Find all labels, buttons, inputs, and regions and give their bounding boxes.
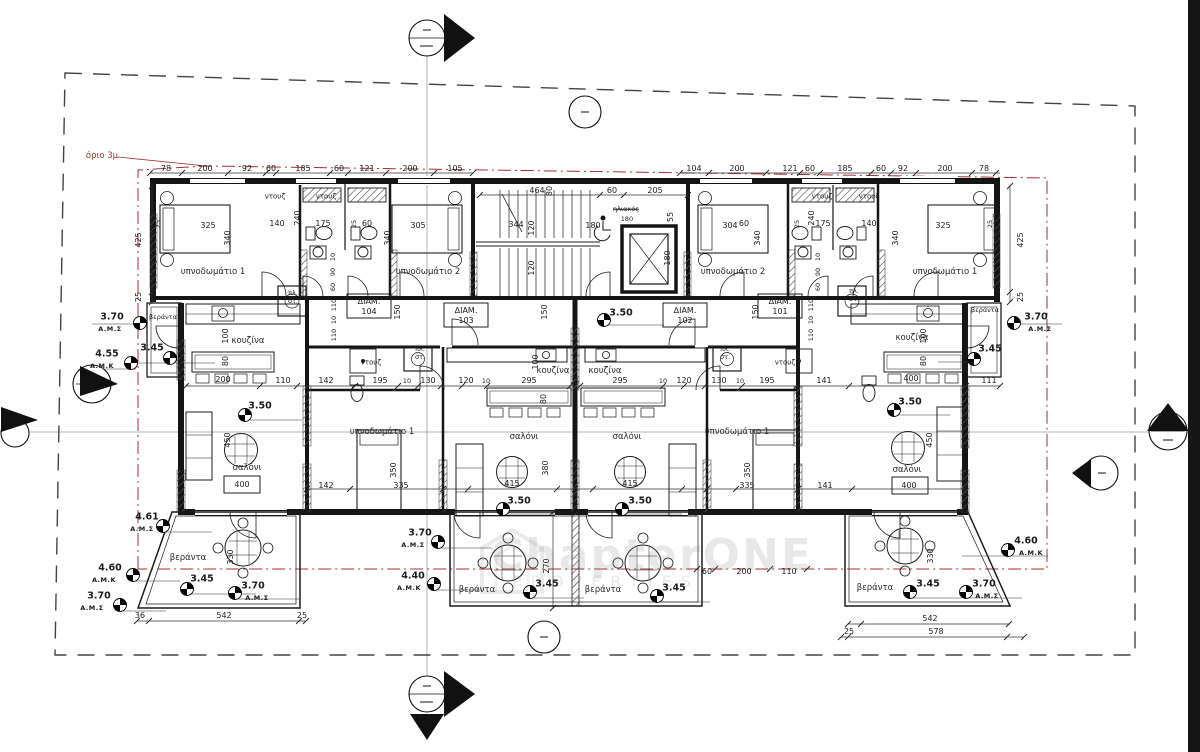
dim-label: 425: [135, 232, 143, 247]
dim-label: 400: [903, 375, 918, 383]
dim-label: 110: [331, 299, 338, 311]
dim-label: 78: [979, 165, 989, 173]
dim-label: 142: [318, 482, 333, 490]
setback-label: όριο 3μ: [86, 152, 118, 161]
dim-label: 92: [242, 165, 252, 173]
room-label-kitchen: κουζίνα: [589, 367, 622, 376]
dim-label: 25: [844, 628, 854, 636]
elevation-suffix: Α.Μ.Κ: [1019, 550, 1043, 557]
laundry-label: πλ.: [288, 290, 298, 297]
dim-label: 141: [816, 377, 831, 385]
room-label-living: σαλόνι: [893, 466, 922, 475]
dim-label: 350: [390, 462, 398, 477]
room-label-bedroom1: υπνοδωμάτιο 1: [181, 268, 246, 277]
room-label-shower: ντουζ: [859, 194, 879, 201]
apartment-tag-prefix: ΔΙΑΜ.: [455, 307, 478, 315]
dim-label: 330: [927, 548, 935, 563]
dim-label: 240: [294, 210, 302, 225]
spot-elevation: 3.70: [241, 581, 264, 591]
dim-label: 110: [275, 377, 290, 385]
dim-label: 104: [686, 165, 701, 173]
room-label-living: σαλόνι: [510, 433, 539, 442]
spot-elevation: 3.45: [140, 343, 163, 353]
floor-plan-drawing: [0, 0, 1200, 752]
dim-label: 450: [224, 432, 232, 447]
dim-label: 10: [331, 316, 338, 324]
dim-label: 380: [542, 460, 550, 475]
dim-label: 542: [216, 612, 231, 620]
room-label-veranda: βεράντα: [170, 554, 207, 563]
spot-elevation: 3.70: [408, 528, 431, 538]
spot-elevation: 3.45: [916, 579, 939, 589]
room-label-shower: ντουζ: [265, 194, 285, 201]
dim-label: 325: [935, 222, 950, 230]
laundry-label: πλ.: [720, 346, 730, 353]
dim-label: 141: [817, 482, 832, 490]
laundry-label: στ.: [288, 298, 298, 305]
dim-label: 175: [815, 220, 830, 228]
dim-label: 25: [155, 220, 162, 228]
laundry-label: πλ.: [415, 346, 425, 353]
dim-label: 330: [227, 549, 235, 564]
dim-label: 78: [161, 165, 171, 173]
room-label-kitchen: κουζίνα: [537, 367, 570, 376]
dim-label: 80: [222, 356, 230, 366]
room-label-kitchen: κουζίνα: [232, 337, 265, 346]
dim-label: 340: [224, 230, 232, 245]
spot-elevation: 4.60: [98, 563, 121, 573]
dim-label: 60: [876, 165, 886, 173]
dim-label: 55: [667, 212, 675, 222]
room-label-bedroom1: υπνοδωμάτιο 1: [705, 428, 770, 437]
dim-label: 464: [529, 187, 544, 195]
spot-elevation: 3.70: [1024, 312, 1047, 322]
spot-elevation: 3.45: [190, 574, 213, 584]
dim-label: 415: [622, 480, 637, 488]
dim-label: 542: [922, 615, 937, 623]
dim-label: 100: [222, 328, 230, 343]
dim-label: 578: [928, 628, 943, 636]
dim-label: 120: [458, 377, 473, 385]
dim-label: 25: [794, 220, 801, 228]
elevation-suffix: Α.Μ.Σ: [80, 605, 103, 612]
dim-label: 450: [926, 432, 934, 447]
dim-label: 120: [676, 377, 691, 385]
room-label-living: σαλόνι: [613, 433, 642, 442]
dim-label: 60: [607, 187, 617, 195]
dim-label: 142: [318, 377, 333, 385]
dim-label: 200: [402, 165, 417, 173]
spot-elevation: 4.61: [135, 512, 158, 522]
elevation-suffix: Α.Μ.Σ: [401, 542, 424, 549]
spot-elevation: 3.50: [248, 401, 271, 411]
dim-label: 120: [528, 260, 536, 275]
apartment-tag-prefix: ΔΙΑΜ.: [674, 307, 697, 315]
dim-label: 110: [331, 329, 338, 341]
dim-label: 110: [808, 299, 815, 311]
dim-label: 10: [482, 378, 490, 385]
dim-label: 200: [937, 165, 952, 173]
apartment-tag-prefix: ΔΙΑΜ.: [769, 298, 792, 306]
apartment-tag-102: 102: [677, 317, 692, 325]
dim-label: 100: [532, 354, 540, 369]
dim-label: 121: [782, 165, 797, 173]
dim-label: 425: [1017, 232, 1025, 247]
spot-elevation: 3.50: [898, 397, 921, 407]
room-label-veranda: βεράντα: [149, 314, 177, 321]
room-label-shower: ντουζ: [775, 360, 795, 367]
dim-label: 195: [759, 377, 774, 385]
elevation-suffix: Α.Μ.Κ: [92, 577, 116, 584]
floor-plan-page: όριο 3μ 78 200 92 60 185 60 121 200 105 …: [0, 0, 1200, 752]
dim-label: 130: [711, 377, 726, 385]
laundry-label: πλ.: [849, 288, 859, 295]
dim-label: 120: [528, 220, 536, 235]
apartment-tag-104: 104: [361, 308, 376, 316]
solar-heater-label: ηλιακός: [613, 206, 639, 213]
dim-label: 130: [420, 377, 435, 385]
dim-label: 10: [659, 378, 667, 385]
spot-elevation: 3.45: [978, 344, 1001, 354]
dim-label: 240: [808, 210, 816, 225]
dim-label: 185: [837, 165, 852, 173]
dim-label: 200: [215, 376, 230, 384]
dim-label: 195: [372, 377, 387, 385]
dim-label: 60: [330, 283, 337, 291]
dim-label: 140: [861, 220, 876, 228]
dim-label: 10: [403, 378, 411, 385]
elevation-suffix: Α.Μ.Σ: [98, 326, 121, 333]
room-label-bedroom1: υπνοδωμάτιο 1: [350, 428, 415, 437]
dim-label: 305: [410, 222, 425, 230]
room-label-shower: ντουζ: [812, 194, 832, 201]
spot-elevation: 3.70: [100, 312, 123, 322]
room-label-bedroom2: υπνοδωμάτιο 2: [396, 268, 461, 277]
dim-label: 10: [330, 253, 337, 261]
dim-label: 205: [647, 187, 662, 195]
dim-label: 415: [504, 480, 519, 488]
dim-label: 180: [664, 250, 672, 265]
spot-elevation: 3.50: [628, 496, 651, 506]
laundry-label: στ.: [415, 354, 425, 361]
dim-label: 10: [736, 378, 744, 385]
elevation-suffix: Α.Μ.Σ: [975, 593, 998, 600]
dim-label: 180: [585, 222, 600, 230]
dim-label: 295: [521, 377, 536, 385]
room-label-bedroom1: υπνοδωμάτιο 1: [913, 268, 978, 277]
dim-label: 175: [315, 220, 330, 228]
elevation-suffix: Α.Μ.Κ: [397, 585, 421, 592]
dim-label: 180: [621, 216, 633, 223]
spot-elevation: 3.50: [609, 308, 632, 318]
room-label-bedroom2: υπνοδωμάτιο 2: [701, 268, 766, 277]
spot-elevation: 3.70: [87, 591, 110, 601]
apartment-tag-prefix: ΔΙΑΜ.: [358, 298, 381, 306]
dim-label: 25: [135, 292, 143, 302]
dim-label: 295: [612, 377, 627, 385]
spot-elevation: 3.70: [972, 579, 995, 589]
apartment-tag-103: 103: [458, 317, 473, 325]
dim-label: 25: [987, 220, 994, 228]
dim-label: 90: [815, 268, 822, 276]
dim-label: 121: [359, 165, 374, 173]
dim-label: 80: [540, 394, 548, 404]
dim-label: 150: [541, 304, 549, 319]
room-label-veranda: βεράντα: [857, 584, 894, 593]
dim-label: 344: [508, 221, 523, 229]
dim-label: 25: [297, 612, 307, 620]
dim-label: 340: [754, 230, 762, 245]
dim-label: 325: [200, 222, 215, 230]
spot-elevation: 4.40: [401, 571, 424, 581]
dim-label: 185: [295, 165, 310, 173]
dim-label: 200: [197, 165, 212, 173]
dim-label: 335: [393, 482, 408, 490]
dim-label: 150: [394, 304, 402, 319]
dim-label: 350: [744, 462, 752, 477]
dim-label: 25: [571, 378, 579, 385]
room-label-living: σαλόνι: [233, 464, 262, 473]
dim-label: 60: [805, 165, 815, 173]
dim-label: 335: [739, 482, 754, 490]
dim-label: 400: [234, 481, 249, 489]
spot-elevation: 3.50: [507, 496, 530, 506]
laundry-label: στ.: [849, 296, 859, 303]
dim-label: 92: [898, 165, 908, 173]
laundry-label: στ.: [720, 354, 730, 361]
dim-label: 200: [729, 165, 744, 173]
dim-label: 340: [892, 230, 900, 245]
watermark-subtitle: PROPERTIES: [512, 574, 700, 590]
dim-label: 60: [266, 165, 276, 173]
room-label-shower: ντουζ: [361, 360, 381, 367]
dim-label: 25: [1017, 292, 1025, 302]
elevation-suffix: Α.Μ.Σ: [1028, 326, 1051, 333]
room-label-veranda: βεράντα: [971, 307, 999, 314]
dim-label: 304: [722, 222, 737, 230]
dim-label: 25: [351, 220, 358, 228]
dim-label: 150: [752, 304, 760, 319]
dim-label: 90: [330, 268, 337, 276]
dim-label: 60: [815, 283, 822, 291]
dim-label: 340: [384, 230, 392, 245]
dim-label: 105: [447, 165, 462, 173]
spot-elevation: 4.60: [1014, 536, 1037, 546]
elevation-suffix: Α.Μ.Σ: [130, 526, 153, 533]
dim-label: 60: [362, 220, 372, 228]
dim-label: 10: [815, 253, 822, 261]
dim-label: 400: [901, 482, 916, 490]
dim-label: 111: [981, 377, 996, 385]
dim-label: 80: [546, 186, 554, 196]
elevation-suffix: Α.Μ.Κ: [90, 363, 114, 370]
dim-label: 140: [269, 220, 284, 228]
dim-label: 80: [920, 356, 928, 366]
spot-elevation: 4.55: [95, 349, 118, 359]
dim-label: 60: [739, 220, 749, 228]
dim-label: 110: [808, 329, 815, 341]
room-label-veranda: βεράντα: [459, 586, 496, 595]
apartment-tag-101: 101: [772, 308, 787, 316]
dim-label: 36: [135, 612, 145, 620]
dim-label: 100: [920, 328, 928, 343]
elevation-suffix: Α.Μ.Σ: [245, 595, 268, 602]
right-edge-strip: [1188, 0, 1200, 752]
room-label-shower: ντουζ: [316, 194, 336, 201]
dim-label: 10: [808, 316, 815, 324]
dim-label: 60: [334, 165, 344, 173]
